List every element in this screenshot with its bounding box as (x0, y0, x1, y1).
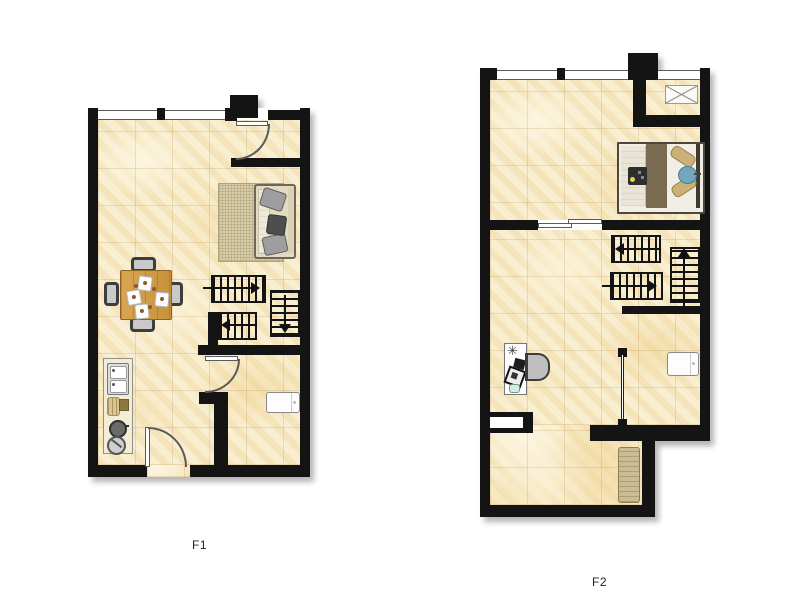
f2-wall-niche-opening (490, 417, 523, 428)
f2-round-pillow-tab (694, 173, 701, 175)
f2-washing-machine (667, 352, 699, 376)
f2-tray-item (641, 176, 644, 179)
f2-railing (621, 355, 624, 421)
f2-bed-blanket (646, 144, 667, 208)
f2-round-pillow (678, 166, 697, 184)
f2-stair-arrow-line (602, 285, 650, 287)
f2-window-top-3 (658, 70, 700, 80)
f2-desk: ✳ (504, 343, 527, 395)
f2-window-top-2 (565, 70, 628, 80)
f2-stair-arrow-up (678, 248, 690, 257)
f2-wall-bottom (480, 505, 655, 517)
f2-floor-mat (618, 447, 640, 503)
f2-bed-tray (628, 167, 647, 185)
f2-closet-wall-h (633, 115, 710, 127)
f2-washing-machine-knob (692, 362, 695, 365)
f2-sliding-door-panel (568, 219, 602, 224)
f2-entry-shaft (628, 53, 658, 80)
f2-window-top-1 (497, 70, 557, 80)
f2-stair-arrow-left (615, 243, 624, 255)
f2-laptop-screen (511, 372, 519, 380)
f2-wall-under-stairs (622, 306, 707, 314)
f2-washing-machine-line (690, 353, 691, 375)
f2-wall-left (480, 68, 490, 517)
f2-plant-icon: ✳ (507, 343, 518, 359)
f2-double-bed (617, 142, 705, 214)
f2-divider-wall-right (600, 220, 710, 230)
f2-vent-box (665, 85, 698, 104)
f2-railing-post (618, 419, 627, 428)
f2-divider-wall-left (490, 220, 538, 230)
f2-stair-arrow-line (683, 254, 685, 310)
f2-tray-item (638, 171, 641, 174)
f2-sliding-door-panel (538, 223, 572, 228)
f2-stair-arrow-right (648, 280, 657, 292)
f2-tray-item (630, 177, 635, 182)
f2-label: F2 (592, 575, 607, 589)
f2-desk-chair (525, 353, 550, 381)
f1-label: F1 (192, 538, 207, 552)
f2-desk-item (509, 384, 520, 393)
x-mark-icon (666, 86, 697, 103)
f2-pillow (669, 144, 698, 169)
f2-wall-top-corner (480, 68, 497, 80)
f2-wall-step (590, 425, 710, 441)
floorplan-canvas: ✳ F1 F2 (0, 0, 800, 600)
f2-stair-arrow-line (620, 248, 661, 250)
floorplan-f2: ✳ (0, 0, 800, 600)
f2-wall-post (557, 68, 565, 80)
